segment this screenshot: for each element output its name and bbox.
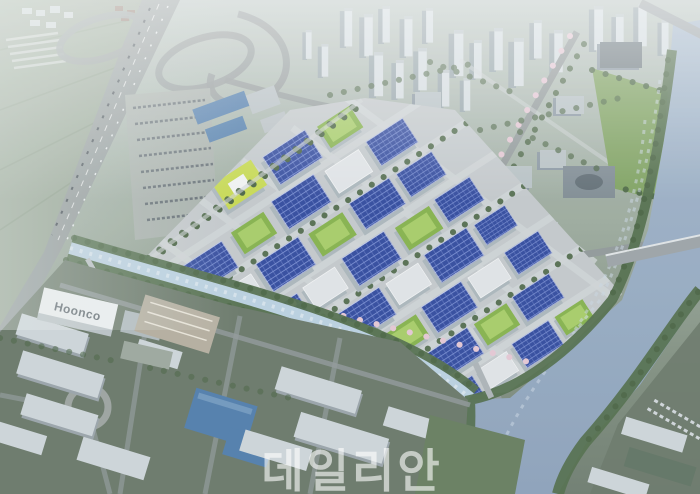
aerial-rendering-photo: Hoonco 데일리안 xyxy=(0,0,700,494)
aerial-scene: Hoonco 데일리안 xyxy=(0,0,700,494)
watermark-text: 데일리안 xyxy=(261,445,442,494)
